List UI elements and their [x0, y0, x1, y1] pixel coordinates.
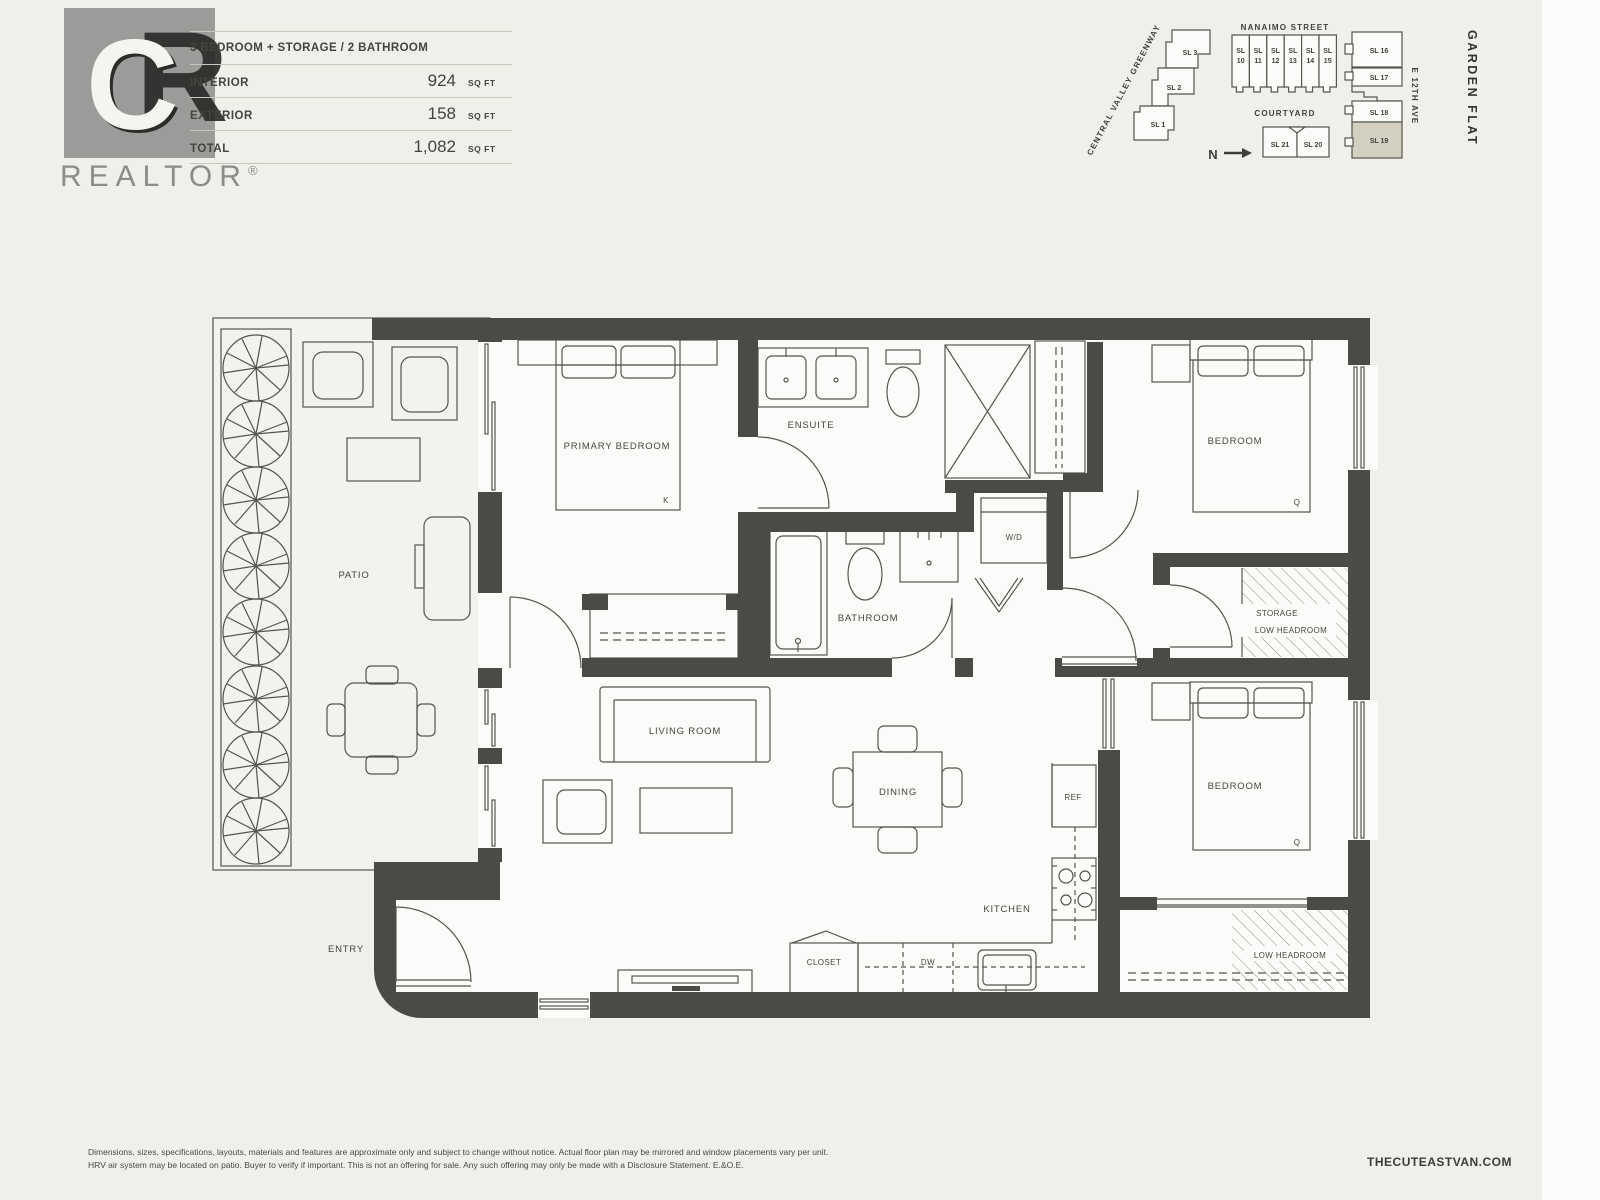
- sl3-label: SL 3: [1183, 50, 1198, 57]
- svg-text:N: N: [1208, 147, 1217, 162]
- label-entry: ENTRY: [328, 944, 364, 955]
- label-storage: STORAGE: [1256, 609, 1298, 618]
- label-living-room: LIVING ROOM: [649, 726, 721, 737]
- disclaimer: Dimensions, sizes, specifications, layou…: [88, 1146, 828, 1171]
- label-wd: W/D: [1006, 533, 1023, 542]
- label-primary-bedroom: PRIMARY BEDROOM: [564, 441, 671, 452]
- svg-text:13: 13: [1289, 58, 1297, 65]
- svg-text:SL: SL: [1236, 48, 1246, 55]
- svg-text:SL: SL: [1271, 48, 1281, 55]
- label-bathroom: BATHROOM: [838, 613, 899, 624]
- patio-area: [213, 318, 490, 870]
- north-arrow: N: [1208, 147, 1252, 162]
- e12th-ave-label: E 12TH AVE: [1410, 68, 1419, 125]
- svg-text:SL: SL: [1306, 48, 1316, 55]
- plan-name-label: GARDEN FLAT: [1465, 30, 1479, 146]
- disclaimer-line1: Dimensions, sizes, specifications, layou…: [88, 1146, 828, 1159]
- disclaimer-line2: HRV air system may be located on patio. …: [88, 1159, 828, 1172]
- svg-text:15: 15: [1324, 58, 1332, 65]
- label-bed-queen: Q: [1294, 498, 1301, 507]
- label-bedroom-lower: BEDROOM: [1208, 781, 1263, 792]
- svg-text:10: 10: [1237, 58, 1245, 65]
- svg-text:SL 18: SL 18: [1370, 110, 1389, 117]
- floorplan-sheet: R C REALTOR® 3 BEDROOM + STORAGE / 2 BAT…: [0, 0, 1600, 1200]
- label-bedroom-upper: BEDROOM: [1208, 436, 1263, 447]
- svg-text:SL: SL: [1323, 48, 1333, 55]
- label-bed-king: K: [663, 496, 669, 505]
- label-ref: REF: [1064, 793, 1081, 802]
- svg-text:SL: SL: [1254, 48, 1264, 55]
- label-kitchen: KITCHEN: [983, 904, 1030, 915]
- svg-text:SL: SL: [1288, 48, 1298, 55]
- right-column-units: SL 16 SL 17 SL 18 SL 19: [1345, 32, 1402, 158]
- website-url: THECUTEASTVAN.COM: [1367, 1155, 1512, 1169]
- courtyard-label: COURTYARD: [1254, 109, 1315, 118]
- svg-text:SL 16: SL 16: [1370, 48, 1389, 55]
- label-low-headroom: LOW HEADROOM: [1254, 951, 1326, 960]
- building-sl3: [1166, 30, 1210, 68]
- sl1-label: SL 1: [1151, 122, 1166, 129]
- label-ensuite: ENSUITE: [788, 420, 835, 431]
- street-row-units: SL10 SL11 SL12 SL13 SL14 SL15: [1232, 35, 1336, 92]
- svg-text:12: 12: [1272, 58, 1280, 65]
- label-dining: DINING: [879, 787, 917, 798]
- svg-text:SL 21: SL 21: [1271, 142, 1290, 149]
- svg-text:14: 14: [1306, 58, 1314, 65]
- floor-plan: PRIMARY BEDROOM K ENSUITE BEDROOM Q W/D …: [213, 318, 1378, 1018]
- plan-drawing: NANAIMO STREET CENTRAL VALLEY GREENWAY C…: [0, 0, 1600, 1200]
- svg-text:SL 19: SL 19: [1370, 138, 1389, 145]
- svg-text:SL 17: SL 17: [1370, 75, 1389, 82]
- site-plan: NANAIMO STREET CENTRAL VALLEY GREENWAY C…: [1085, 23, 1479, 162]
- label-closet: CLOSET: [807, 958, 841, 967]
- nanaimo-street-label: NANAIMO STREET: [1241, 23, 1330, 32]
- svg-text:SL 20: SL 20: [1304, 142, 1323, 149]
- label-patio: PATIO: [338, 570, 369, 581]
- svg-text:11: 11: [1254, 58, 1262, 65]
- label-storage-low-headroom: LOW HEADROOM: [1255, 626, 1327, 635]
- label-dw: DW: [921, 958, 935, 967]
- courtyard-units: SL 21 SL 20: [1263, 127, 1329, 157]
- label-bed-queen: Q: [1294, 838, 1301, 847]
- sl2-label: SL 2: [1167, 85, 1182, 92]
